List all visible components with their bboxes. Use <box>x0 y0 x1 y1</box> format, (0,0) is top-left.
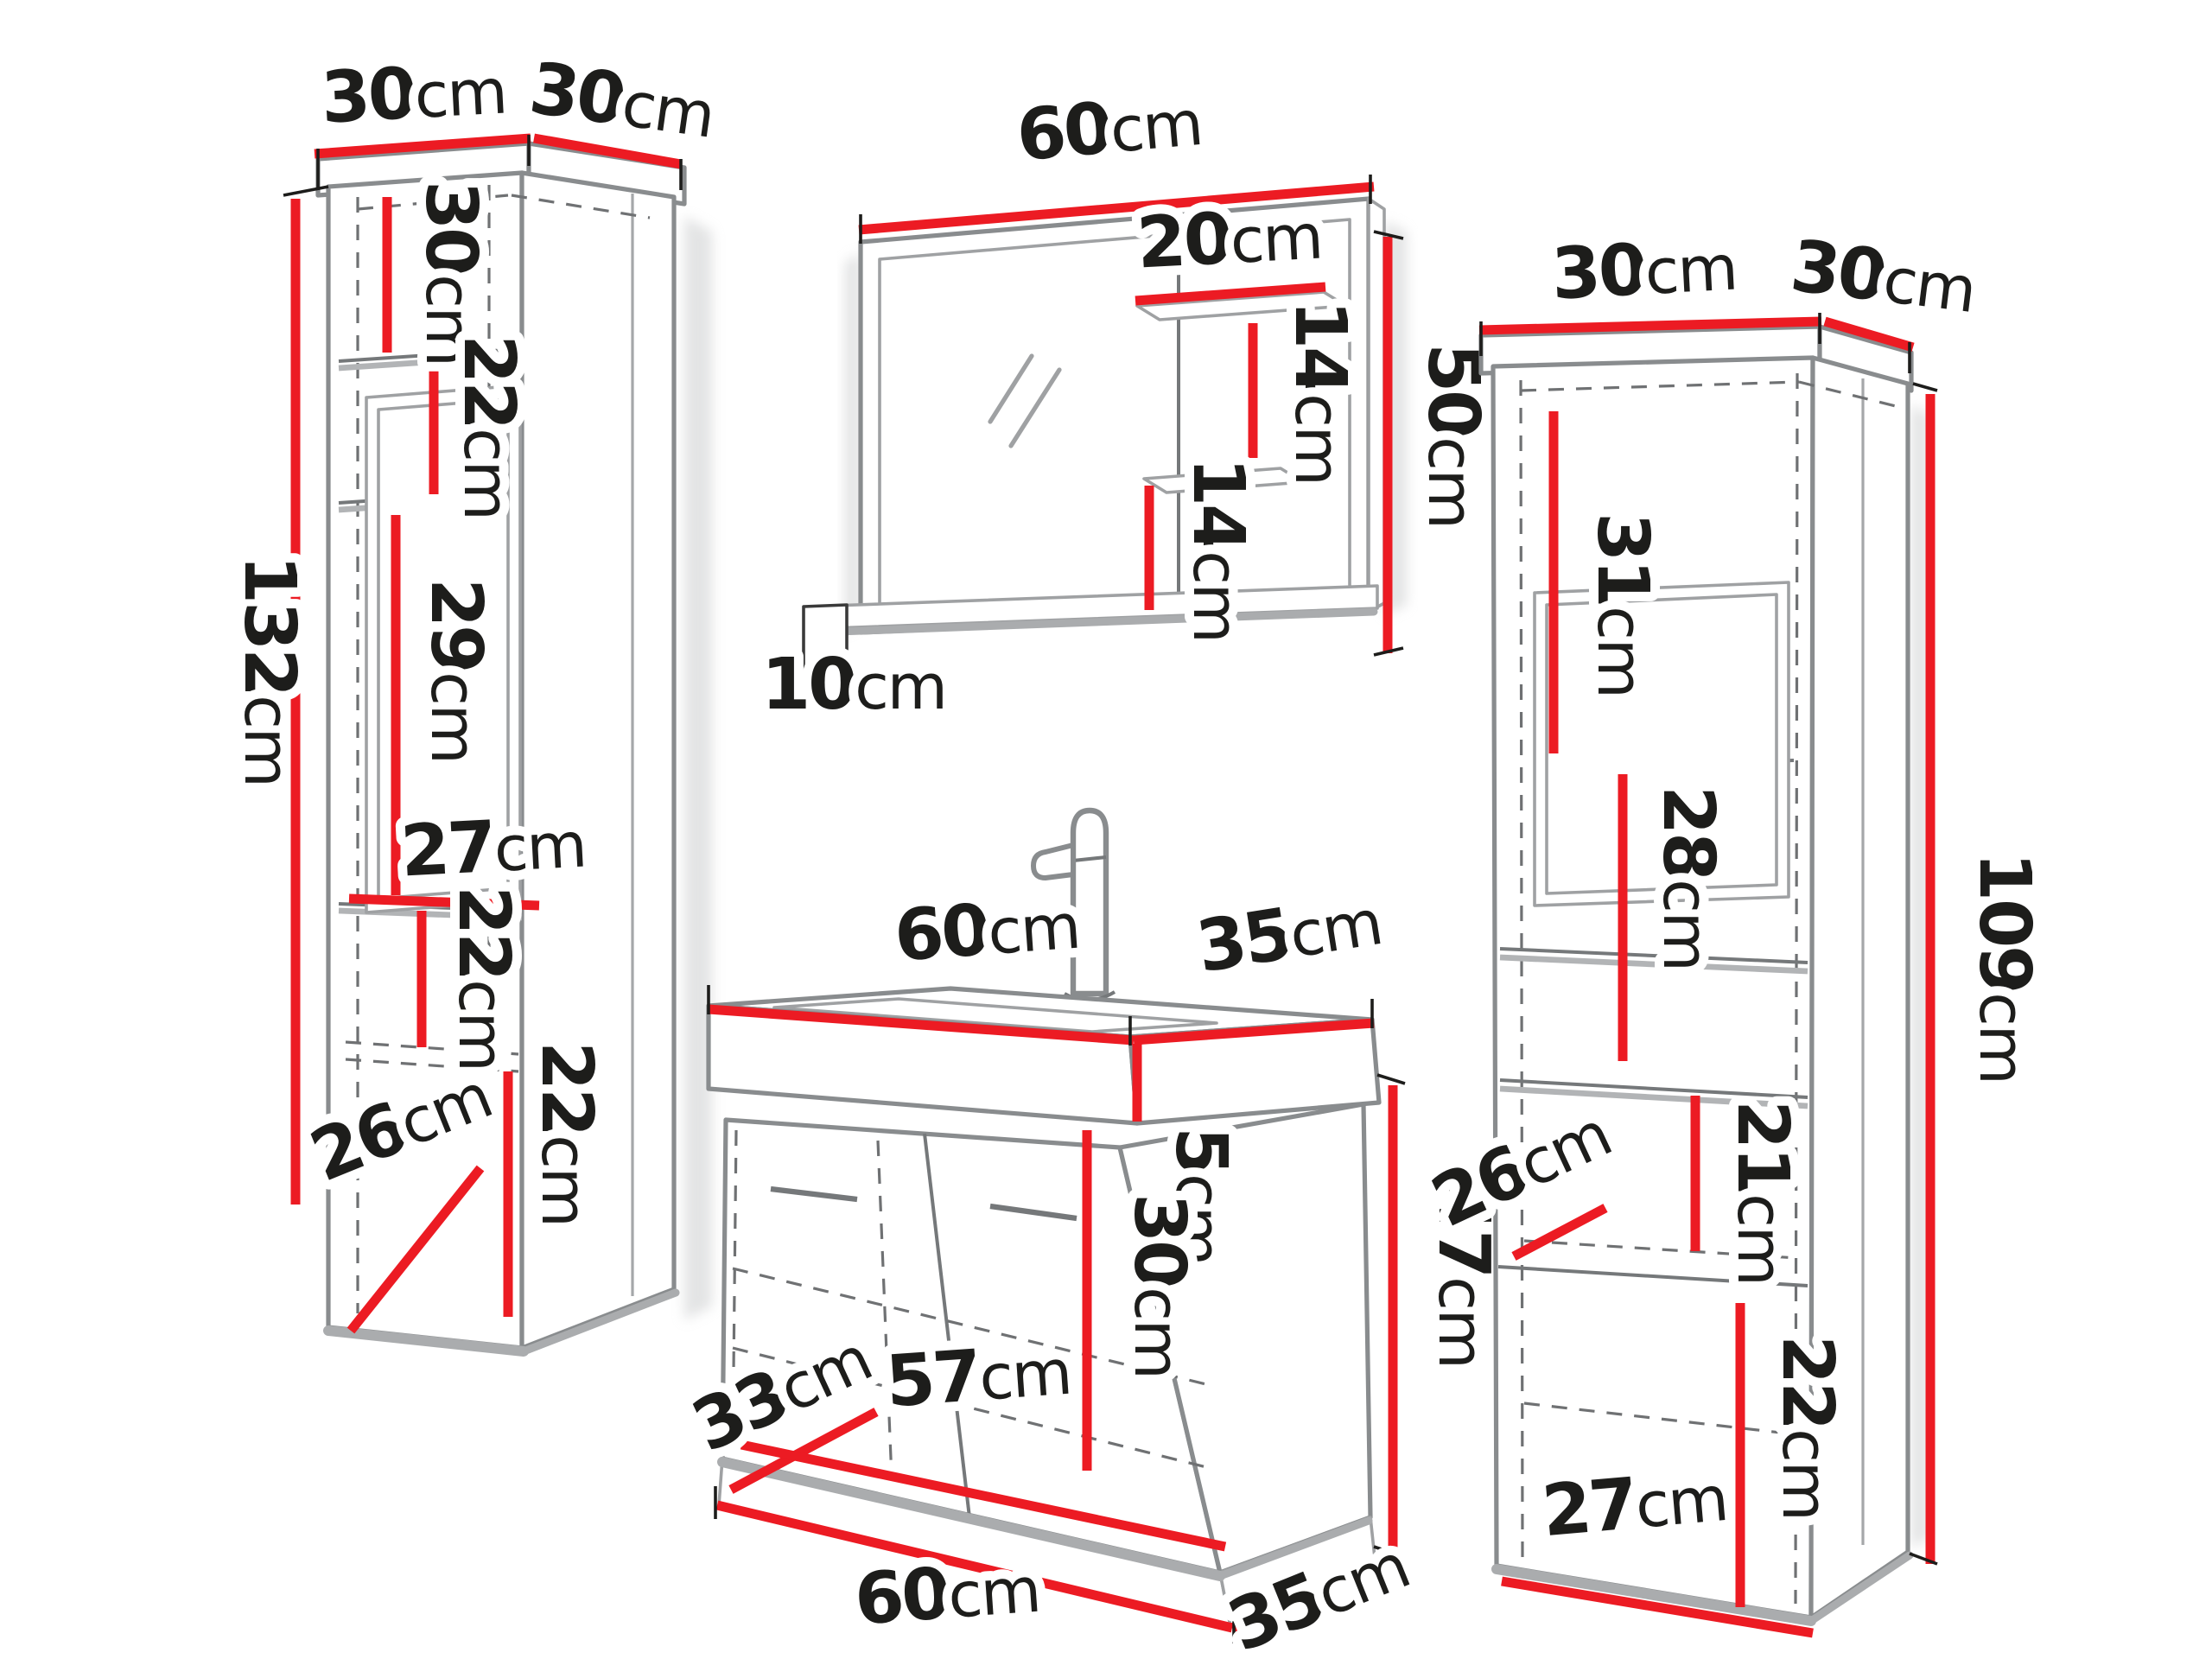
label-left-section-29: 29cm <box>415 578 497 763</box>
label-mirror-gap-14b: 14cm <box>1177 457 1259 642</box>
furniture-dimension-diagram: 30cm 30cm 30cm 22cm 29cm 27cm 22cm 26cm … <box>0 0 2212 1659</box>
left-tall-cabinet: 30cm 30cm 30cm 22cm 29cm 27cm 22cm 26cm … <box>228 48 719 1351</box>
label-right-section-28: 28cm <box>1647 785 1729 970</box>
mirror-cabinet: 60cm 20cm 14cm 50cm 14cm 10cm <box>761 79 1494 726</box>
label-left-height-132: 132cm <box>228 555 310 786</box>
label-right-top-width: 30cm <box>1549 225 1738 316</box>
label-mirror-shelf-20: 20cm <box>1135 194 1324 285</box>
label-left-section-22a: 22cm <box>448 334 530 519</box>
label-left-section-22c: 22cm <box>525 1041 607 1226</box>
mirror-side-edge <box>1369 199 1384 612</box>
label-vanity-width-60: 60cm <box>892 883 1082 978</box>
label-vanity-base-width-60: 60cm <box>852 1547 1042 1642</box>
label-right-height-109: 109cm <box>1963 852 2045 1084</box>
label-vanity-inner-30: 30cm <box>1118 1193 1200 1378</box>
label-mirror-width-60: 60cm <box>1014 79 1205 177</box>
label-right-section-22: 22cm <box>1766 1335 1848 1520</box>
label-left-section-22b: 22cm <box>442 886 524 1071</box>
label-right-section-31: 31cm <box>1581 512 1663 697</box>
label-left-top-width: 30cm <box>319 48 508 140</box>
left-cabinet-shadow <box>684 216 712 1320</box>
diagram-canvas: 30cm 30cm 30cm 22cm 29cm 27cm 22cm 26cm … <box>0 0 2212 1659</box>
label-vanity-depth-35: 35cm <box>1192 879 1387 988</box>
label-mirror-depth-10: 10cm <box>761 644 946 726</box>
label-left-width-27: 27cm <box>398 802 588 893</box>
label-right-section-21: 21cm <box>1721 1100 1803 1285</box>
label-right-top-depth: 30cm <box>1786 226 1980 329</box>
label-mirror-gap-14a: 14cm <box>1279 300 1361 485</box>
mirror-shadow-left <box>845 252 861 632</box>
sink-vanity: 60cm 35cm 5cm 47cm 30cm 33cm 57cm 60cm 3… <box>680 810 1504 1659</box>
label-vanity-inner-width-57: 57cm <box>883 1329 1073 1424</box>
right-tall-cabinet: 30cm 30cm 31cm 28cm 109cm 21cm 26cm 22cm… <box>1420 225 2045 1633</box>
mirror-glass <box>880 219 1350 613</box>
